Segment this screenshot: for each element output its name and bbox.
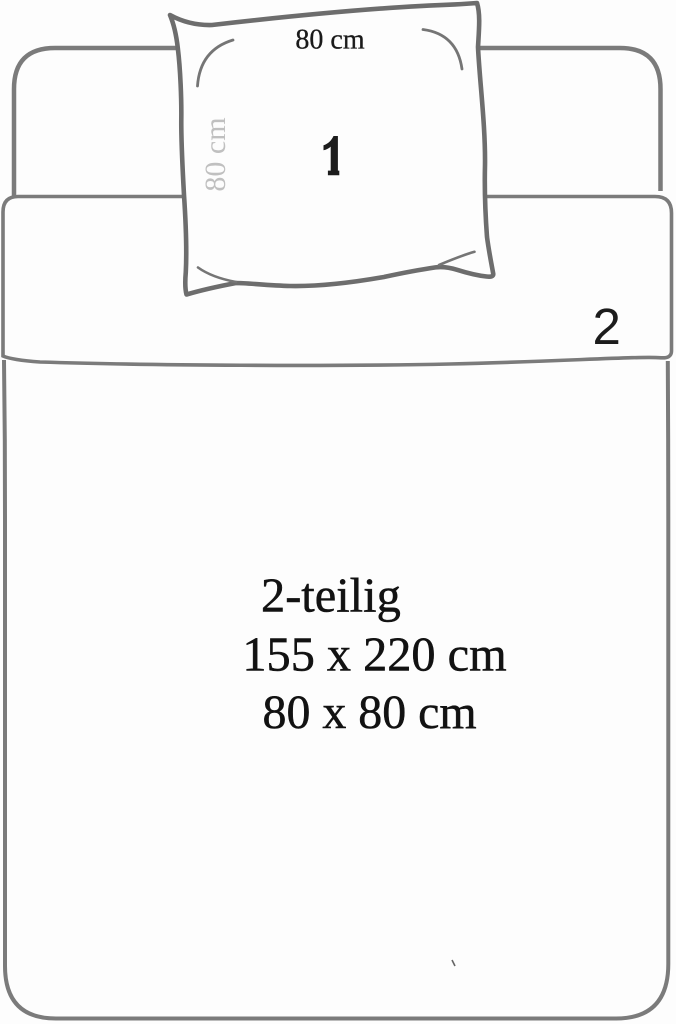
svg-text:155 x 220 cm: 155 x 220 cm bbox=[242, 629, 506, 682]
svg-text:2-teilig: 2-teilig bbox=[261, 570, 401, 623]
svg-text:80 cm: 80 cm bbox=[199, 117, 232, 191]
svg-text:2: 2 bbox=[593, 298, 621, 355]
svg-text:80 cm: 80 cm bbox=[295, 25, 364, 56]
svg-text:80 x 80 cm: 80 x 80 cm bbox=[263, 686, 477, 739]
